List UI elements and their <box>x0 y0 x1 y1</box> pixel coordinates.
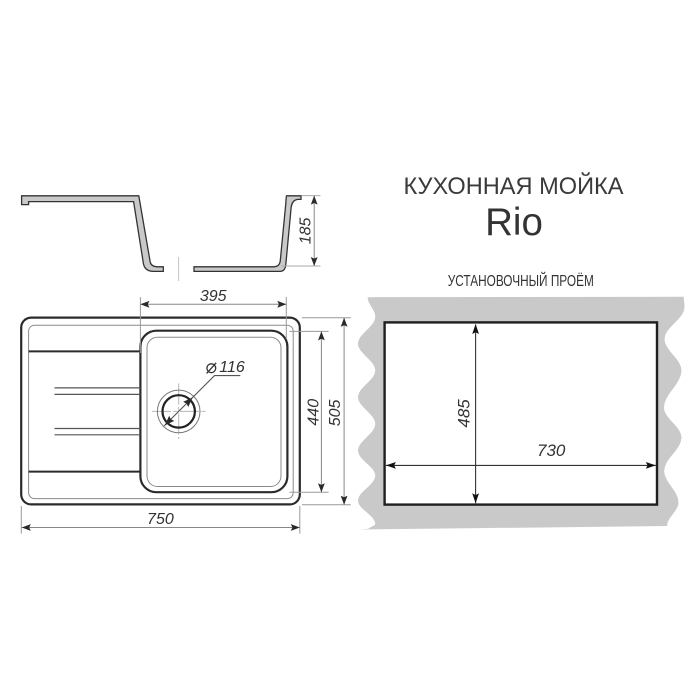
svg-text:730: 730 <box>537 441 566 460</box>
svg-text:Rio: Rio <box>485 201 543 244</box>
svg-text:485: 485 <box>454 399 473 428</box>
svg-text:185: 185 <box>297 218 314 245</box>
svg-text:116: 116 <box>219 359 245 376</box>
svg-text:440: 440 <box>306 399 323 426</box>
svg-text:750: 750 <box>147 511 174 528</box>
svg-text:УСТАНОВОЧНЫЙ ПРОЁМ: УСТАНОВОЧНЫЙ ПРОЁМ <box>448 271 594 290</box>
svg-text:КУХОННАЯ МОЙКА: КУХОННАЯ МОЙКА <box>404 172 624 200</box>
svg-text:395: 395 <box>200 288 227 305</box>
svg-text:505: 505 <box>327 400 344 427</box>
